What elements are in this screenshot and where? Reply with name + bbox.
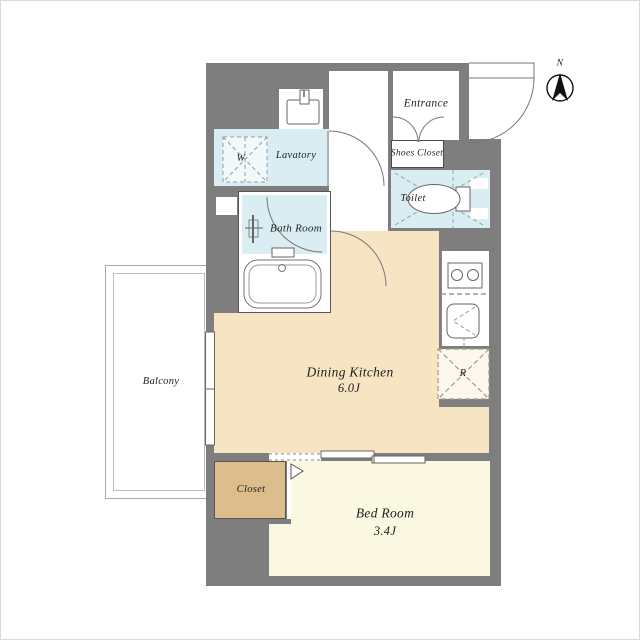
label-bedroom: Bed Room — [356, 506, 414, 520]
label-washer: W — [237, 154, 246, 164]
label-bedroom-size: 3.4J — [374, 525, 396, 538]
room-dining-kitchen-mid — [331, 231, 439, 453]
entrance-exterior-area — [469, 63, 501, 139]
label-toilet: Toilet — [400, 194, 425, 205]
label-closet: Closet — [237, 485, 266, 496]
hallway-floor — [329, 71, 388, 231]
floor-plan: Entrance Shoes Closet Toilet Lavatory W … — [0, 0, 640, 640]
label-refrigerator: R — [460, 369, 467, 380]
label-dining-kitchen: Dining Kitchen — [306, 365, 393, 379]
label-bath: Bath Room — [270, 224, 322, 235]
label-balcony: Balcony — [143, 377, 180, 388]
room-dining-kitchen — [214, 313, 331, 453]
label-dining-kitchen-size: 6.0J — [338, 382, 360, 395]
lavatory-sink-niche — [279, 89, 323, 129]
kitchen-counter — [441, 251, 489, 346]
bath-wall-niche — [216, 197, 237, 215]
label-lavatory: Lavatory — [276, 151, 316, 162]
label-shoes-closet: Shoes Closet — [391, 149, 443, 159]
label-north: N — [557, 59, 564, 69]
room-bedroom-lower-left — [269, 524, 291, 576]
toilet-niche-bottom — [470, 208, 488, 219]
toilet-niche-top — [470, 178, 488, 189]
room-dining-kitchen-right — [439, 407, 489, 453]
north-arrow-icon — [547, 73, 573, 101]
label-entrance: Entrance — [404, 98, 449, 110]
